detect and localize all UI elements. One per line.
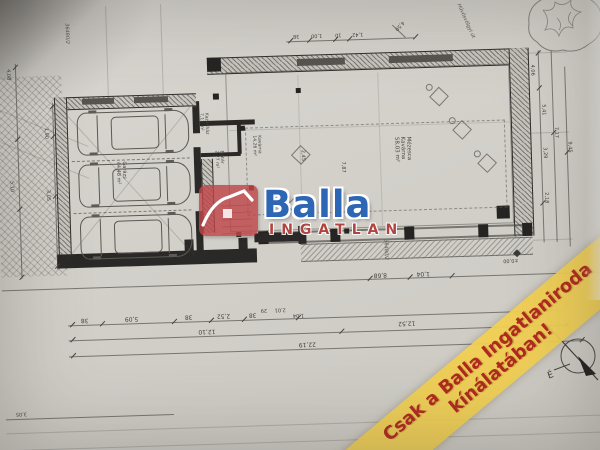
pier xyxy=(522,223,532,236)
room-name: Előtér xyxy=(219,150,225,168)
dim-line-bottom xyxy=(68,310,563,327)
vestibule-label: Előtér 2,77 m² xyxy=(214,150,225,168)
car-symbol xyxy=(80,213,193,259)
dim-tick xyxy=(413,34,419,40)
garage-window-sill xyxy=(82,98,114,105)
hall-dim: 7,87 xyxy=(340,162,346,173)
hall-room-label: Mézesca Kavárna 58,03 m² xyxy=(393,136,412,162)
logo-sub-text: INGATLAN xyxy=(269,222,404,238)
boundary-line xyxy=(160,4,164,94)
dim-text: 38 xyxy=(81,317,89,324)
room-name: Kazánház xyxy=(203,113,209,135)
wall-stub xyxy=(238,238,247,251)
dim-text: 38 xyxy=(293,33,300,39)
parcel-number: 36480/2 xyxy=(382,239,389,260)
dim-text: 4,06 xyxy=(529,65,535,76)
dim-text: 10 xyxy=(335,32,342,38)
door-symbol xyxy=(408,226,413,231)
hall-corner-column xyxy=(207,57,221,71)
benchmark-symbol xyxy=(509,249,517,257)
door-symbol xyxy=(213,93,219,99)
door-symbol xyxy=(296,88,301,93)
dim-ext xyxy=(533,238,573,240)
dim-text: 3,29 xyxy=(542,147,548,158)
dim-ext xyxy=(529,131,569,133)
dim-text: 2,18 xyxy=(543,192,549,203)
room-area: 14,26 m² xyxy=(251,135,257,156)
floorplan-photo: Mézesca Kavárna 58,03 m² 7,87 2,45 Kazán… xyxy=(0,0,600,450)
dim-line-right xyxy=(564,67,571,247)
room-area: 44,48 m² xyxy=(115,162,121,185)
dim-text: 3,05 xyxy=(45,190,51,201)
photo-corner-shadow xyxy=(0,0,110,80)
dim-text: 38 xyxy=(185,313,193,320)
garage-top-wall xyxy=(54,93,196,110)
dim-text: 5,09 xyxy=(125,315,139,322)
car-symbol xyxy=(78,161,191,207)
logo-brand-text: Balla xyxy=(263,183,372,226)
garage-label: Garázs 44,48 m² xyxy=(115,161,127,184)
dim-text: 2,52 xyxy=(217,312,231,319)
room-area: 2,77 m² xyxy=(214,151,220,169)
garage-window-sill xyxy=(134,96,168,103)
dim-text: 1,04 xyxy=(416,270,430,277)
car-symbol xyxy=(76,109,189,155)
north-letter: É xyxy=(546,368,556,381)
dim-text: 38 xyxy=(249,311,257,318)
hall-dim: 2,45 xyxy=(300,150,306,161)
dim-text: 5,41 xyxy=(540,104,546,115)
street-name: Hűvösvölgyi út xyxy=(456,3,477,39)
dim-text: 5,10 xyxy=(8,181,14,192)
room-name-alt: Kavárna xyxy=(399,137,406,162)
dim-line-right xyxy=(551,50,558,242)
site-line xyxy=(7,431,600,450)
pier xyxy=(478,224,488,237)
site-line xyxy=(2,272,600,292)
room-name: Mézesca xyxy=(405,136,412,161)
paper-edge-highlight xyxy=(586,0,600,300)
small-cafe-label: Kavárna 14,26 m² xyxy=(251,135,262,156)
room-name: Kavárna xyxy=(256,135,262,156)
dim-text: 1,90 xyxy=(43,128,49,139)
benchmark-symbol xyxy=(517,249,525,257)
dim-text: 2,01 xyxy=(275,306,286,312)
dim-text: 12,52 xyxy=(398,319,415,327)
dim-text: 7,17 xyxy=(553,127,559,138)
boiler-room-label: Kazánház 7,12 m² xyxy=(198,113,209,135)
dim-text: 1,42 xyxy=(352,31,363,37)
dim-text: 8,68 xyxy=(374,271,388,278)
logo-house-icon xyxy=(199,185,258,236)
door-symbol xyxy=(240,126,245,131)
benchmark-text: ±0,00 xyxy=(503,257,519,263)
dim-line xyxy=(6,414,174,420)
dim-text: 29 xyxy=(261,307,268,313)
dim-text: 1,00 xyxy=(311,32,322,38)
dim-text: 9,45 xyxy=(567,141,573,152)
dim-text: 3,05 xyxy=(16,411,27,417)
dim-text: 22,19 xyxy=(299,341,316,349)
dim-text: 12,10 xyxy=(198,328,215,336)
room-area: 58,03 m² xyxy=(393,137,400,162)
dim-text: 1,04 xyxy=(293,312,304,318)
hall-window-sill xyxy=(297,58,345,67)
